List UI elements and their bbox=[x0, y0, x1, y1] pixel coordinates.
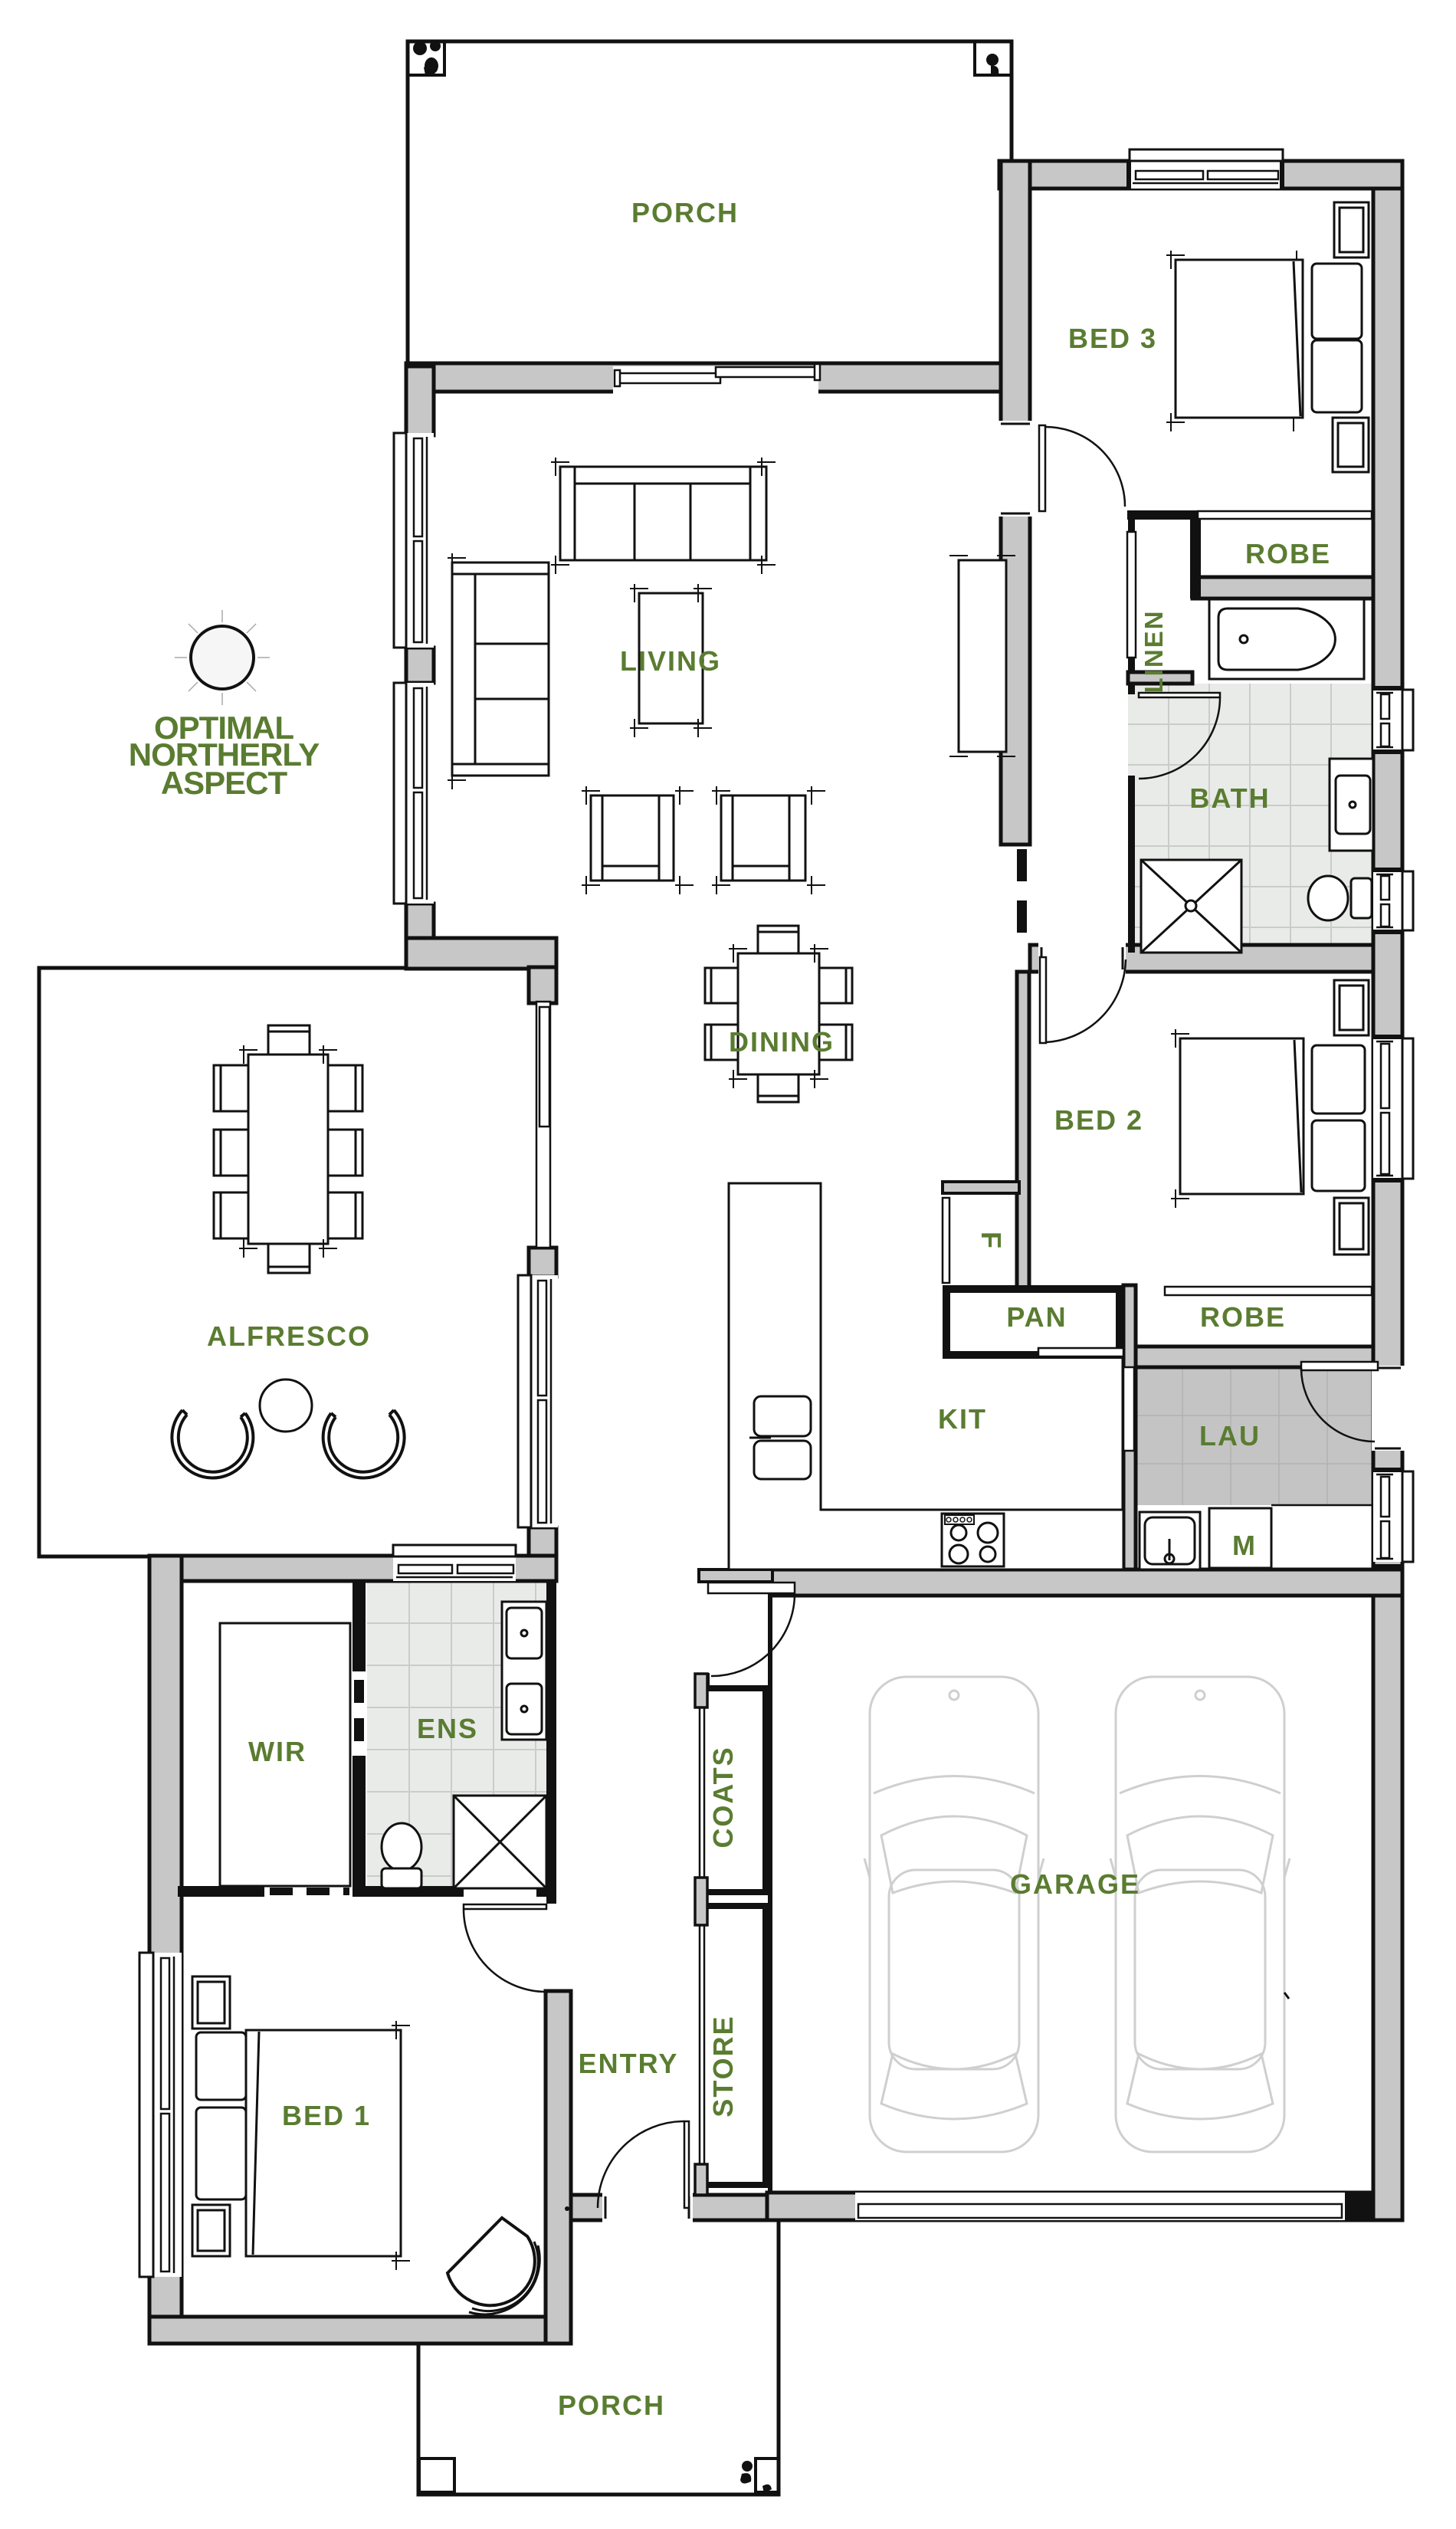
svg-text:BED 3: BED 3 bbox=[1068, 323, 1157, 354]
svg-text:PORCH: PORCH bbox=[631, 197, 739, 228]
svg-text:ALFRESCO: ALFRESCO bbox=[207, 1320, 371, 1352]
svg-text:LINEN: LINEN bbox=[1140, 610, 1168, 694]
svg-text:BATH: BATH bbox=[1189, 782, 1270, 814]
svg-text:M: M bbox=[1232, 1530, 1257, 1561]
svg-text:LAU: LAU bbox=[1199, 1420, 1261, 1451]
svg-text:ENS: ENS bbox=[417, 1713, 478, 1744]
svg-text:COATS: COATS bbox=[707, 1746, 739, 1848]
svg-text:PORCH: PORCH bbox=[558, 2390, 665, 2421]
svg-text:BED 2: BED 2 bbox=[1054, 1104, 1143, 1136]
svg-text:BED 1: BED 1 bbox=[282, 2100, 371, 2131]
svg-text:F: F bbox=[976, 1232, 1007, 1250]
svg-text:WIR: WIR bbox=[248, 1736, 307, 1767]
svg-text:STORE: STORE bbox=[707, 2015, 739, 2117]
svg-text:ENTRY: ENTRY bbox=[579, 2048, 679, 2079]
svg-text:LIVING: LIVING bbox=[620, 645, 721, 677]
svg-text:ROBE: ROBE bbox=[1200, 1301, 1286, 1333]
svg-text:KIT: KIT bbox=[938, 1403, 987, 1435]
svg-text:DINING: DINING bbox=[729, 1026, 835, 1058]
svg-text:ROBE: ROBE bbox=[1245, 538, 1331, 569]
svg-text:PAN: PAN bbox=[1006, 1301, 1067, 1333]
svg-text:GARAGE: GARAGE bbox=[1010, 1868, 1140, 1900]
svg-text:ASPECT: ASPECT bbox=[161, 765, 288, 801]
